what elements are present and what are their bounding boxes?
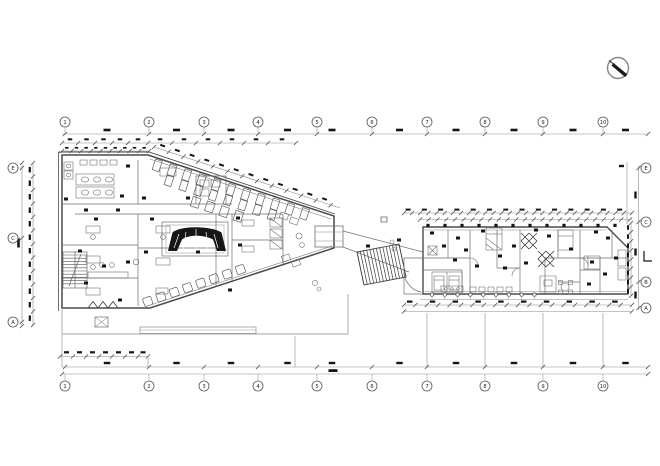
svg-text:2: 2	[147, 384, 150, 390]
svg-text:E: E	[11, 166, 14, 172]
grid-bubble-top-8: 8	[480, 117, 490, 127]
grid-bubble-left-E: E	[8, 163, 18, 173]
left-building	[59, 152, 349, 334]
grid-bubble-bottom-7: 7	[422, 381, 432, 391]
grid-bubble-left-C: C	[8, 233, 18, 243]
grid-bubble-bottom-6: 6	[367, 381, 377, 391]
grid-bubble-top-5: 5	[312, 117, 322, 127]
grid-bubble-top-6: 6	[367, 117, 377, 127]
svg-text:C: C	[11, 236, 15, 242]
grid-bubble-bottom-10: 10	[598, 381, 608, 391]
grid-bubble-right-C: C	[641, 217, 651, 227]
svg-text:5: 5	[315, 384, 318, 390]
grid-bubble-top-3: 3	[199, 117, 209, 127]
svg-text:2: 2	[147, 120, 150, 126]
svg-text:A: A	[11, 320, 15, 326]
staircase	[63, 252, 87, 288]
grid-bubble-top-1: 1	[60, 117, 70, 127]
svg-text:E: E	[644, 166, 647, 172]
grid-bubble-bottom-4: 4	[253, 381, 263, 391]
svg-text:9: 9	[541, 384, 544, 390]
svg-text:1: 1	[63, 384, 66, 390]
svg-text:6: 6	[370, 384, 373, 390]
terrace-entry	[62, 294, 348, 334]
grid-bubble-top-9: 9	[538, 117, 548, 127]
office-desks	[86, 212, 321, 295]
svg-text:6: 6	[370, 120, 373, 126]
grid-bubble-left-A: A	[8, 317, 18, 327]
svg-text:8: 8	[483, 120, 486, 126]
porch	[404, 258, 423, 294]
svg-text:7: 7	[425, 120, 428, 126]
link-corridor	[315, 217, 423, 285]
feature-wall	[162, 222, 228, 256]
grid-bubble-right-A: A	[641, 303, 651, 313]
floor-plan-drawing: 1234567891012345678910ECAECBA	[0, 0, 660, 466]
north-arrow-icon	[608, 58, 629, 79]
svg-text:B: B	[644, 280, 648, 286]
svg-text:9: 9	[541, 120, 544, 126]
svg-text:7: 7	[425, 384, 428, 390]
svg-text:C: C	[644, 220, 648, 226]
svg-text:A: A	[644, 306, 648, 312]
svg-text:8: 8	[483, 384, 486, 390]
grid-bubble-top-7: 7	[422, 117, 432, 127]
grid-bubble-bottom-2: 2	[144, 381, 154, 391]
svg-text:5: 5	[315, 120, 318, 126]
svg-text:3: 3	[202, 384, 205, 390]
grid-bubble-top-2: 2	[144, 117, 154, 127]
svg-text:10: 10	[600, 120, 607, 126]
grid-bubble-top-4: 4	[253, 117, 263, 127]
dimension-annotations	[20, 132, 652, 376]
link-staircase	[357, 244, 406, 285]
svg-text:1: 1	[63, 120, 66, 126]
toilet-fixtures	[64, 160, 220, 198]
svg-text:3: 3	[202, 120, 205, 126]
svg-text:10: 10	[600, 384, 607, 390]
lobby-seating-row	[142, 264, 246, 307]
grid-bubble-bottom-1: 1	[60, 381, 70, 391]
cad-viewport: 1234567891012345678910ECAECBA	[0, 0, 660, 466]
grid-bubble-bottom-8: 8	[480, 381, 490, 391]
grid-bubble-right-B: B	[641, 277, 651, 287]
grid-bubble-bottom-5: 5	[312, 381, 322, 391]
grid-bubble-bottom-3: 3	[199, 381, 209, 391]
grid-bubble-bottom-9: 9	[538, 381, 548, 391]
grid-bubble-top-10: 10	[598, 117, 608, 127]
right-building	[404, 224, 628, 300]
grid-bubble-right-E: E	[641, 163, 651, 173]
grid-bubbles: 1234567891012345678910ECAECBA	[8, 117, 651, 391]
